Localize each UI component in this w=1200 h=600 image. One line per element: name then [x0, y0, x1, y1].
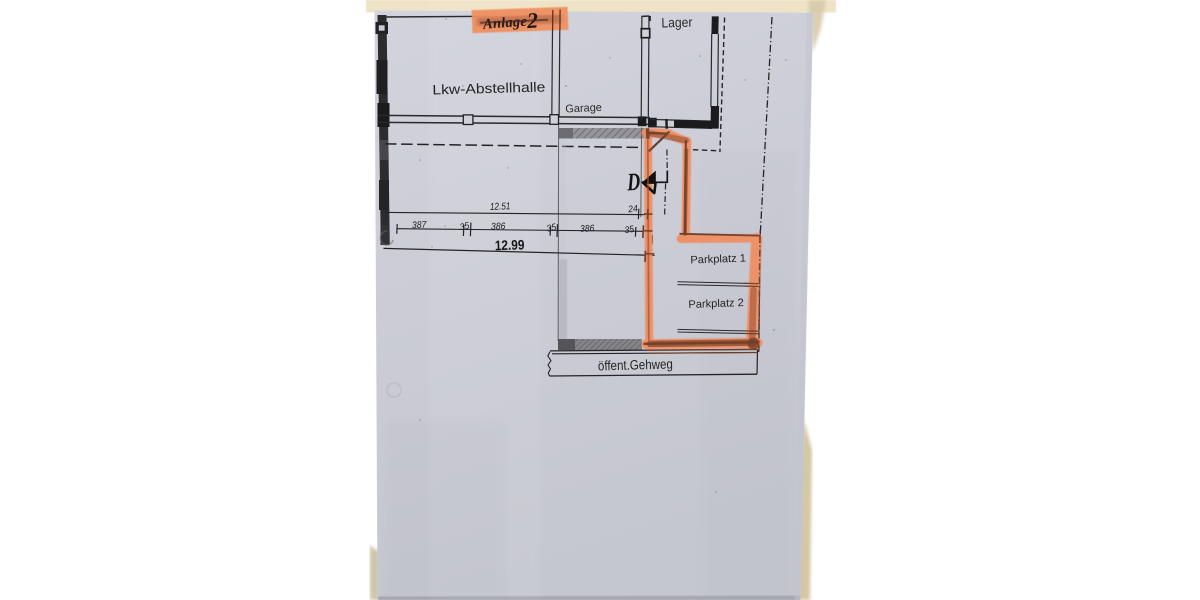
svg-text:386: 386: [580, 223, 596, 235]
svg-text:24: 24: [627, 203, 638, 215]
svg-text:D: D: [626, 169, 641, 197]
svg-text:12.99: 12.99: [495, 237, 525, 253]
svg-text:Garage: Garage: [565, 102, 602, 116]
svg-text:Lkw-Abstellhalle: Lkw-Abstellhalle: [432, 80, 546, 98]
svg-text:387: 387: [412, 220, 428, 232]
svg-text:12.51: 12.51: [490, 201, 511, 213]
svg-text:386: 386: [491, 221, 507, 233]
svg-text:Parkplatz 2: Parkplatz 2: [688, 297, 744, 311]
svg-text:Parkplatz 1: Parkplatz 1: [690, 253, 746, 267]
svg-text:Lager: Lager: [661, 15, 693, 31]
svg-text:öffent.Gehweg: öffent.Gehweg: [598, 357, 673, 374]
